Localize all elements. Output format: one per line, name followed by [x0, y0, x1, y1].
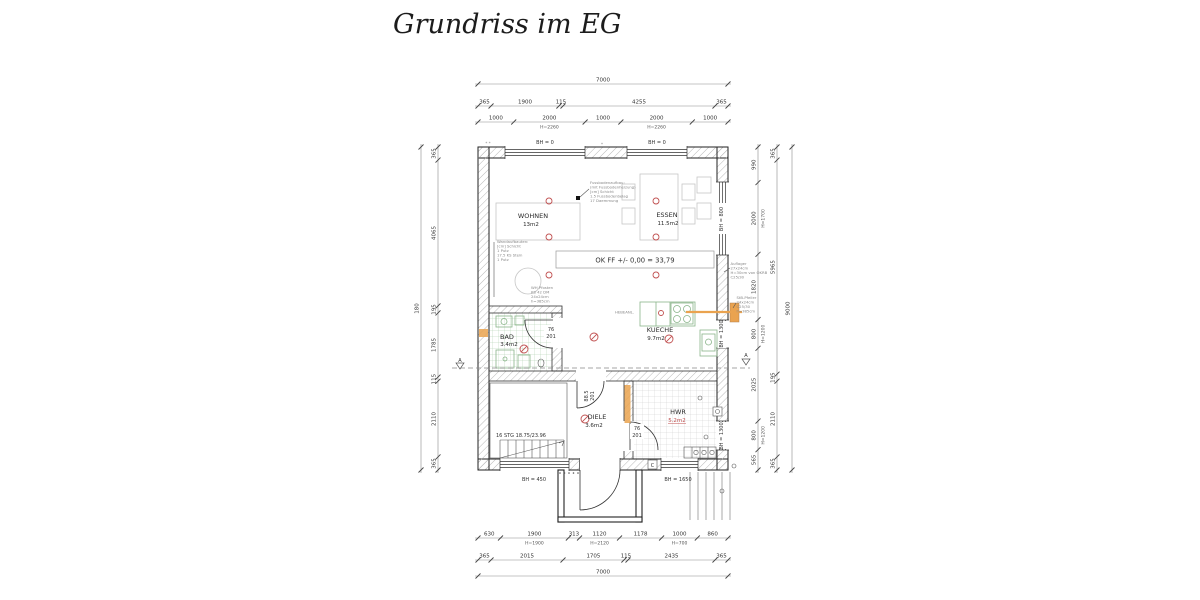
roof-mark: * * [485, 141, 490, 146]
chair [697, 203, 711, 219]
dim-value: 7000 [596, 570, 610, 576]
dim-value: 180 [415, 303, 421, 314]
dim-value: 800 [752, 430, 758, 441]
dim-value: 1000 [672, 532, 686, 538]
dim-value: 630 [484, 532, 495, 538]
room-label-kueche: KUECHE [647, 326, 674, 334]
floor-buildup-note: Fussbodenaufbau:(mit Fussbodenheizung)[c… [590, 180, 636, 203]
dim-value: 9000 [786, 301, 792, 315]
dim-value: 2110 [771, 412, 777, 426]
sink [702, 334, 715, 351]
room-area-hwr: 5.2m2 [668, 418, 686, 424]
wall-symbol-box [713, 407, 722, 416]
dim-value: 365 [771, 458, 777, 469]
chair [697, 177, 711, 193]
dim-sub-value: H=2260 [540, 125, 559, 131]
ceiling-outlet-icon [546, 234, 552, 240]
level-marker: OK FF +/- 0,00 = 33,79 [556, 251, 714, 268]
dim-value: 115 [556, 100, 567, 106]
dim-sub-value: H=2260 [647, 125, 666, 131]
door-height: 201 [632, 433, 642, 439]
bh-label: BH = 1300 [719, 422, 725, 449]
door-opening-diele [576, 370, 606, 382]
door-width: 76 [548, 327, 554, 333]
dim-value: 195 [771, 372, 777, 383]
shaft-element [625, 385, 631, 423]
room-area-diele: 3.6m2 [585, 423, 603, 429]
bh-label: BH = 0 [536, 140, 554, 146]
dim-value: 800 [752, 328, 758, 339]
room-label-bad: BAD [500, 333, 514, 341]
section-triangle-icon [742, 359, 750, 365]
dim-value: 2110 [432, 412, 438, 426]
dim-sub-value: H=1200 [761, 426, 767, 445]
dim-value: 5965 [771, 260, 777, 274]
dim-value: 4255 [632, 100, 646, 106]
vestibule-wall-bottom [558, 517, 642, 522]
dim-value: 2000 [752, 211, 758, 225]
wall-bad-top [489, 306, 562, 313]
dim-value: 2000 [542, 116, 556, 122]
ceiling-outlet-icon [653, 198, 659, 204]
dim-value: 1000 [489, 116, 503, 122]
dim-value: 1820 [752, 279, 758, 293]
section-marker-a-right: A [744, 353, 748, 359]
dim-value: 365 [432, 148, 438, 159]
post-note: WH PfostenKS 42 DM24x24cmh=385cm [531, 285, 554, 304]
entrance-vestibule [558, 470, 642, 522]
dim-value: 2025 [752, 377, 758, 391]
dim-value: 365 [716, 554, 727, 560]
dim-value: 365 [479, 100, 490, 106]
dim-sub-value: H=1900 [525, 541, 544, 547]
smoke-detector-icon [665, 335, 673, 343]
dim-value: 365 [479, 554, 490, 560]
staircase: 16 STG 18.75/23.96 [490, 383, 567, 458]
dim-value: 1705 [586, 554, 600, 560]
dim-value: 565 [752, 454, 758, 465]
stair-room-outline [490, 383, 567, 458]
chair [622, 208, 635, 224]
level-text: OK FF +/- 0,00 = 33,79 [595, 257, 674, 265]
ceiling-outlet-icon [653, 234, 659, 240]
bh-label: BH = 0 [648, 140, 666, 146]
outlet-icon [659, 311, 664, 316]
wall-buildup-note: Wandaufbauten:[cm] Schicht1 Putz17.5 KS … [497, 239, 528, 262]
vestibule-wall-left [558, 470, 564, 522]
dim-value: 115 [621, 554, 632, 560]
dim-sub-value: H=1700 [761, 209, 767, 228]
room-label-hwr: HWR [670, 408, 686, 416]
ceiling-outlet-icon [546, 272, 552, 278]
dim-value: 1000 [596, 116, 610, 122]
dim-value: 990 [752, 159, 758, 170]
room-label-diele: DIELE [588, 413, 607, 421]
dim-value: 7000 [596, 78, 610, 84]
dining-table [640, 174, 678, 240]
ceiling-outlet-icon [653, 272, 659, 278]
wall-niche [479, 329, 488, 337]
dim-value: 365 [716, 100, 727, 106]
bh-label: BH = 450 [522, 477, 546, 483]
entrance-door-swing [580, 470, 620, 510]
chair [682, 208, 695, 224]
dim-value: 365 [432, 458, 438, 469]
bh-label: BH = 800 [719, 207, 725, 231]
bh-label: BH = 1650 [664, 477, 691, 483]
chair [682, 184, 695, 200]
door-height: 201 [590, 391, 596, 401]
roof-mark: * [601, 142, 603, 147]
page-title: Grundriss im EG [393, 9, 621, 40]
wall-left [478, 147, 489, 470]
room-label-wohnen: WOHNEN [518, 212, 548, 220]
vestibule-wall-right [636, 470, 642, 522]
exterior-grate [690, 464, 736, 520]
room-area-essen: 11.5m2 [657, 221, 678, 227]
dim-sub-value: H=2120 [590, 541, 609, 547]
dim-value: 313 [569, 532, 580, 538]
dim-value: 2015 [520, 554, 534, 560]
dim-value: 1900 [527, 532, 541, 538]
dim-value: 1785 [432, 338, 438, 352]
dim-value: 365 [771, 148, 777, 159]
bad-tile-floor [489, 313, 552, 371]
dim-sub-value: H=1200 [761, 325, 767, 344]
dim-value: 1000 [703, 116, 717, 122]
hebeanlage-label: HEBEANL. [615, 310, 634, 315]
dim-value: 4065 [432, 226, 438, 240]
floor-plan-drawing: Grundriss im EG 700036519001154255365100… [0, 0, 1200, 600]
floor-plan-page: Grundriss im EG 700036519001154255365100… [0, 0, 1200, 600]
room-area-kueche: 9.7m2 [647, 336, 665, 342]
room-area-wohnen: 13m2 [523, 222, 539, 228]
door-width: 76 [634, 426, 640, 432]
smoke-detector-icon [590, 333, 598, 341]
room-area-bad: 3.4m2 [500, 342, 518, 348]
dim-value: 1900 [518, 100, 532, 106]
dim-value: 2000 [650, 116, 664, 122]
dim-sub-value: H=700 [672, 541, 688, 547]
stair-label: 16 STG 18.75/23.96 [496, 433, 546, 439]
dim-value: 1120 [593, 532, 607, 538]
room-label-essen: ESSEN [656, 211, 677, 219]
dim-value: 2435 [664, 554, 678, 560]
bh-label: BH = 1300 [719, 320, 725, 347]
dim-value: 860 [707, 532, 718, 538]
dim-value: 195 [432, 304, 438, 315]
symbol-box-letter: C [651, 463, 655, 469]
support-note: Auflager27x24cmH=30cm von OKRBC25/30 [731, 261, 768, 280]
dim-value: 1178 [634, 532, 648, 538]
column-note: StB-Pfeiler24x24cmC25/30h=385cm [737, 295, 757, 314]
door-height: 201 [546, 334, 556, 340]
